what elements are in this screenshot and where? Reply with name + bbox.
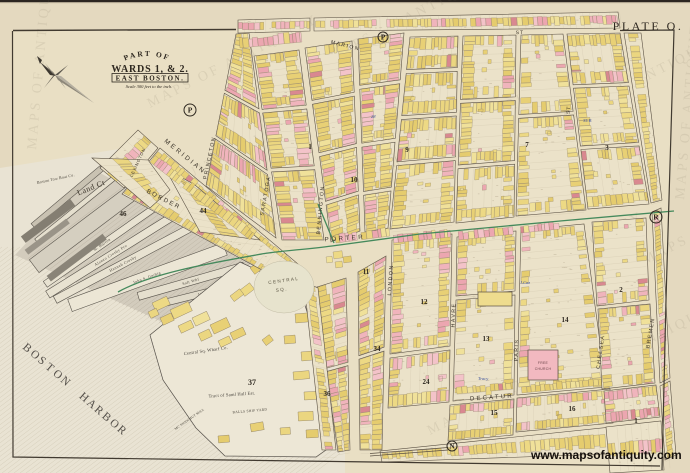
svg-text:P: P xyxy=(381,33,386,42)
svg-text:J.Caz: J.Caz xyxy=(520,280,530,285)
svg-text:PARIS: PARIS xyxy=(514,339,521,362)
svg-text:HAVRE: HAVRE xyxy=(451,302,458,327)
svg-text:CHURCH: CHURCH xyxy=(535,367,552,371)
svg-text:N: N xyxy=(449,442,455,451)
svg-text:10: 10 xyxy=(351,176,359,184)
svg-text:28: 28 xyxy=(371,114,376,119)
svg-text:36: 36 xyxy=(324,390,332,398)
svg-text:ST: ST xyxy=(566,105,573,114)
svg-text:12: 12 xyxy=(421,298,429,306)
svg-text:R: R xyxy=(653,213,659,222)
svg-text:24: 24 xyxy=(423,378,431,386)
svg-text:ST: ST xyxy=(516,30,525,36)
svg-text:11: 11 xyxy=(363,268,370,276)
svg-text:2: 2 xyxy=(619,286,623,294)
svg-text:44: 44 xyxy=(200,207,208,215)
svg-text:34: 34 xyxy=(374,345,382,353)
svg-text:13: 13 xyxy=(483,335,491,343)
svg-text:PLATE O.: PLATE O. xyxy=(613,19,684,33)
svg-text:3: 3 xyxy=(605,144,609,152)
svg-text:1: 1 xyxy=(634,417,638,425)
svg-text:35.B: 35.B xyxy=(583,118,592,123)
svg-text:Tracy: Tracy xyxy=(478,376,488,381)
svg-text:9: 9 xyxy=(405,146,409,154)
svg-text:7: 7 xyxy=(525,141,529,149)
svg-text:www.mapsofantiquity.com: www.mapsofantiquity.com xyxy=(530,448,682,462)
svg-text:46: 46 xyxy=(120,210,128,218)
svg-text:37: 37 xyxy=(248,378,256,387)
svg-text:EAST BOSTON.: EAST BOSTON. xyxy=(116,75,185,83)
svg-text:FREE: FREE xyxy=(538,361,549,365)
svg-text:Scale 300 feet to the inch.: Scale 300 feet to the inch. xyxy=(126,84,173,89)
svg-text:14: 14 xyxy=(562,316,570,324)
svg-text:1: 1 xyxy=(308,143,312,151)
svg-text:15: 15 xyxy=(491,409,499,417)
svg-text:P: P xyxy=(188,106,193,115)
svg-text:16: 16 xyxy=(569,405,577,413)
